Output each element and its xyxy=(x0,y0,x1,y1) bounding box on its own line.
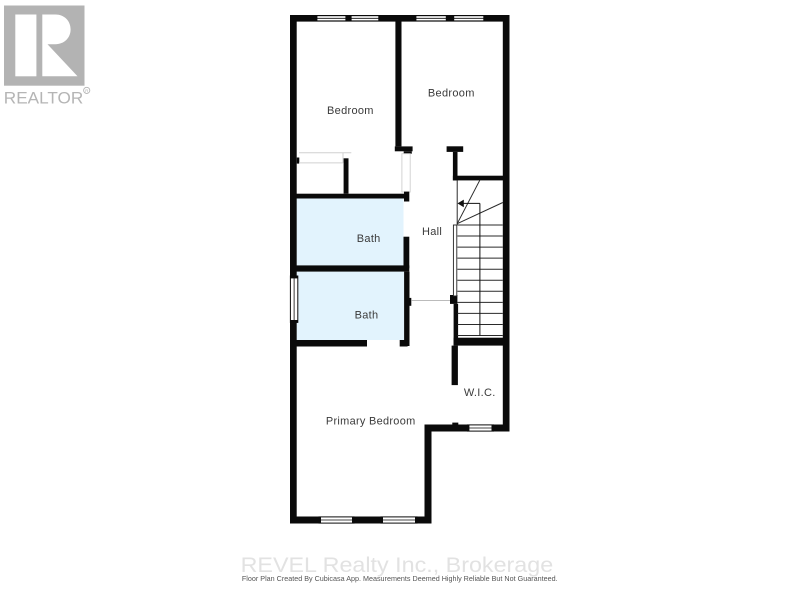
svg-text:W.I.C.: W.I.C. xyxy=(464,387,496,399)
svg-text:Primary Bedroom: Primary Bedroom xyxy=(326,416,416,428)
svg-text:Bedroom: Bedroom xyxy=(428,87,475,99)
svg-text:REALTOR: REALTOR xyxy=(4,89,84,107)
svg-text:Bath: Bath xyxy=(355,309,379,321)
svg-text:Bedroom: Bedroom xyxy=(327,105,374,117)
svg-text:Floor Plan Created By Cubicasa: Floor Plan Created By Cubicasa App. Meas… xyxy=(242,574,558,583)
svg-text:Bath: Bath xyxy=(357,233,381,245)
svg-text:Hall: Hall xyxy=(422,226,442,238)
